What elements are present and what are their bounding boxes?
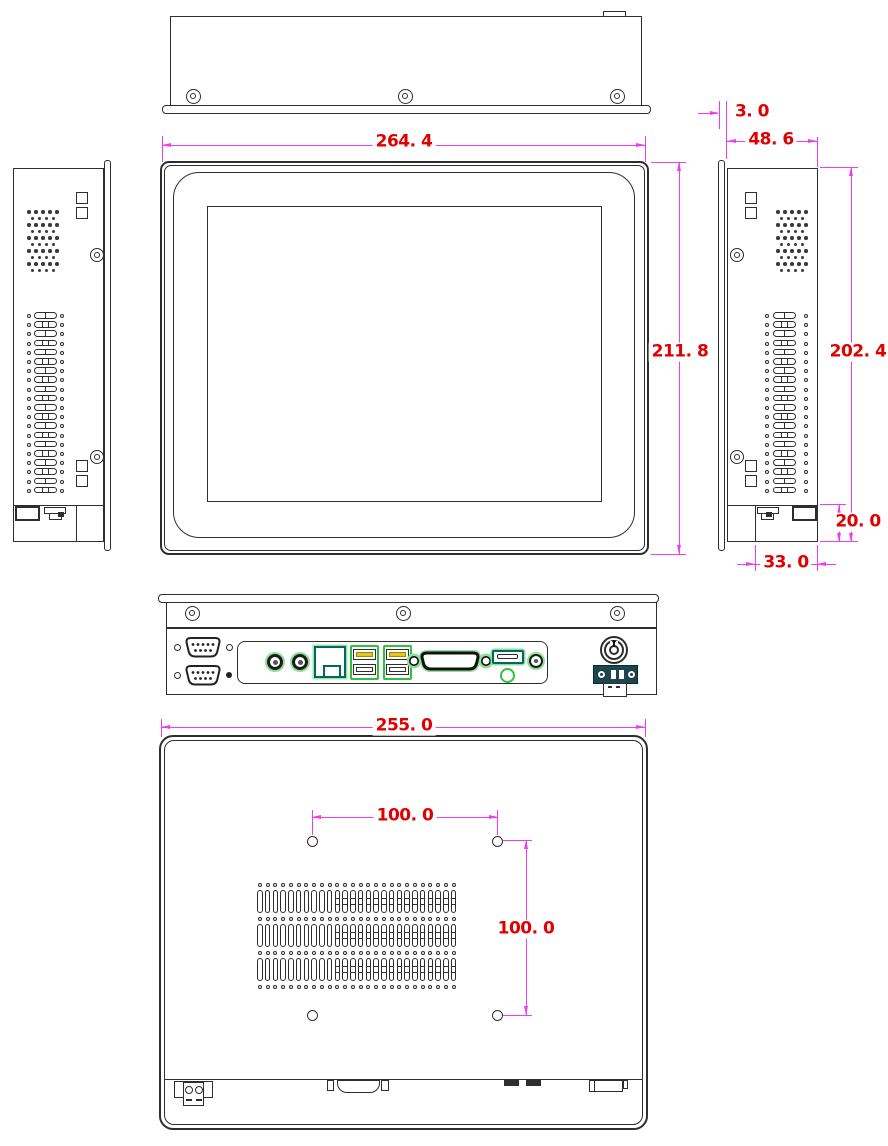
right-view-divider (755, 505, 756, 542)
vent-hole (765, 351, 769, 355)
vent-slot (34, 422, 57, 429)
vent-slot (451, 890, 457, 913)
vent-hole (405, 917, 409, 921)
arrow-icon (849, 167, 853, 176)
vent-hole (436, 883, 440, 887)
vent-hole (374, 985, 378, 989)
vent-hole (297, 951, 301, 955)
vent-hole (804, 480, 808, 484)
vent-hole (258, 951, 262, 955)
vent-slot (381, 924, 387, 947)
arrow-icon (162, 143, 171, 147)
vent-slot (296, 890, 302, 913)
left-view-square-cutout (76, 192, 88, 204)
vent-hole (359, 951, 363, 955)
speaker-hole (45, 256, 49, 260)
vent-hole (452, 883, 456, 887)
extension-line (726, 101, 727, 159)
vent-hole (804, 406, 808, 410)
terminal-plug-mark (608, 686, 612, 688)
speaker-hole (34, 262, 38, 266)
vent-hole (266, 951, 270, 955)
vent-hole (351, 985, 355, 989)
usb-tongue (389, 652, 406, 657)
power-jack (529, 654, 543, 668)
vent-hole (452, 985, 456, 989)
speaker-hole (45, 217, 49, 221)
right-view-bezel-strip (718, 160, 725, 551)
vent-slot (288, 890, 294, 913)
vent-slot (273, 890, 279, 913)
terminal-plug (603, 683, 627, 697)
speaker-hole (34, 249, 38, 253)
arrow-icon (524, 1006, 528, 1015)
vent-hole (374, 883, 378, 887)
vent-slot (319, 924, 325, 947)
vent-hole (436, 917, 440, 921)
vent-slot (273, 924, 279, 947)
vent-slot (397, 958, 403, 981)
vent-hole (60, 388, 64, 392)
vent-hole (27, 434, 31, 438)
speaker-hole (41, 210, 45, 214)
speaker-hole (776, 210, 780, 214)
extension-line (162, 136, 163, 162)
vent-hole (765, 360, 769, 364)
vent-slot (404, 958, 410, 981)
vent-slot (34, 312, 57, 319)
screw-hole (614, 610, 620, 616)
vent-hole (359, 883, 363, 887)
speaker-hole (48, 249, 52, 253)
top-view-tab (603, 11, 626, 17)
vent-hole (343, 883, 347, 887)
vent-hole (804, 360, 808, 364)
vent-hole (413, 883, 417, 887)
extension-line (645, 136, 646, 162)
power-icon-gap (616, 641, 618, 645)
vent-slot (443, 958, 449, 981)
vent-hole (27, 480, 31, 484)
speaker-hole (45, 243, 49, 247)
vent-hole (27, 314, 31, 318)
rear-bottom-seam (165, 1079, 643, 1080)
power-icon-bar (613, 640, 616, 647)
vesa-hole (492, 836, 503, 847)
vent-hole (765, 388, 769, 392)
vent-hole (328, 985, 332, 989)
vent-slot (34, 349, 57, 356)
vent-hole (258, 917, 262, 921)
left-view-square-cutout (76, 460, 88, 472)
vga-port (407, 647, 493, 675)
vent-slot (773, 487, 796, 494)
speaker-hole (55, 210, 59, 214)
vent-hole (421, 883, 425, 887)
vent-hole (320, 951, 324, 955)
vent-slot (773, 468, 796, 475)
vent-slot (311, 890, 317, 913)
vent-hole (289, 883, 293, 887)
vent-slot (412, 890, 418, 913)
vent-hole (343, 951, 347, 955)
arrow-icon (489, 815, 498, 819)
vent-hole (27, 489, 31, 493)
vent-slot (265, 958, 271, 981)
vent-hole (765, 342, 769, 346)
vent-slot (773, 349, 796, 356)
speaker-hole (52, 269, 56, 273)
vent-slot (265, 924, 271, 947)
arrow-icon (524, 840, 528, 849)
vent-slot (389, 890, 395, 913)
vent-slot (34, 459, 57, 466)
speaker-hole (797, 236, 801, 240)
left-view-connector-pin (58, 512, 64, 517)
screw-hole (734, 454, 740, 460)
rear-dsub-tab (381, 1080, 389, 1091)
vent-hole (60, 397, 64, 401)
audio-jack (267, 654, 283, 670)
vent-hole (359, 917, 363, 921)
screw-hole (400, 610, 406, 616)
speaker-hole (27, 249, 31, 253)
vent-slot (34, 404, 57, 411)
vent-slot (304, 890, 310, 913)
vent-hole (351, 883, 355, 887)
vent-slot (34, 367, 57, 374)
arrow-icon (636, 143, 645, 147)
vent-slot (773, 358, 796, 365)
vent-slot (366, 924, 372, 947)
vent-hole (27, 452, 31, 456)
speaker-hole (804, 236, 808, 240)
vent-slot (773, 422, 796, 429)
vent-slot (34, 395, 57, 402)
vent-hole (765, 434, 769, 438)
speaker-hole (790, 236, 794, 240)
vent-hole (281, 985, 285, 989)
vent-hole (765, 480, 769, 484)
speaker-hole (38, 243, 42, 247)
speaker-hole (31, 256, 35, 260)
vent-hole (328, 883, 332, 887)
vent-hole (60, 489, 64, 493)
vent-hole (27, 360, 31, 364)
serial-port (184, 664, 222, 689)
display-area (207, 206, 602, 502)
left-view-square-cutout (76, 475, 88, 487)
vent-slot (34, 330, 57, 337)
vent-slot (420, 890, 426, 913)
speaker-hole (801, 256, 805, 260)
vent-slot (342, 890, 348, 913)
audio-jack (292, 654, 308, 670)
vent-hole (382, 917, 386, 921)
vent-slot (34, 386, 57, 393)
arrow-icon (677, 545, 681, 554)
power-icon-gap (610, 641, 612, 645)
terminal-screw (597, 670, 606, 679)
vent-slot (420, 924, 426, 947)
vent-hole (444, 951, 448, 955)
speaker-hole (787, 269, 791, 273)
vent-hole (27, 342, 31, 346)
vent-hole (60, 452, 64, 456)
vent-hole (289, 917, 293, 921)
vent-slot (428, 958, 434, 981)
vent-hole (804, 452, 808, 456)
speaker-hole (797, 223, 801, 227)
speaker-hole (776, 249, 780, 253)
speaker-hole (48, 223, 52, 227)
arrow-icon (808, 139, 817, 143)
arrow-icon (746, 562, 755, 566)
rear-bracket-line (594, 1080, 595, 1092)
right-view-square-cutout (745, 475, 757, 487)
vent-hole (60, 434, 64, 438)
vent-hole (281, 917, 285, 921)
speaker-hole (38, 217, 42, 221)
vent-hole (351, 917, 355, 921)
right-view-square-cutout (745, 460, 757, 472)
vent-hole (27, 388, 31, 392)
vent-slot (335, 890, 341, 913)
speaker-hole (41, 236, 45, 240)
extension-line (503, 1015, 532, 1016)
vent-hole (804, 443, 808, 447)
vent-hole (390, 951, 394, 955)
vent-hole (258, 985, 262, 989)
screw-hole (190, 93, 196, 99)
displayport-slot (497, 654, 518, 659)
vent-hole (312, 883, 316, 887)
vent-slot (257, 924, 263, 947)
speaker-hole (794, 217, 798, 221)
vent-slot (34, 321, 57, 328)
vent-hole (452, 951, 456, 955)
speaker-hole (787, 243, 791, 247)
vent-slot (773, 321, 796, 328)
vent-hole (60, 314, 64, 318)
vent-slot (34, 441, 57, 448)
dim-vesa-width: 100. 0 (374, 807, 437, 826)
dim-bottom-step-height: 20. 0 (832, 513, 883, 532)
vent-hole (27, 397, 31, 401)
speaker-hole (794, 269, 798, 273)
extension-line (651, 162, 686, 163)
vent-slot (404, 924, 410, 947)
vent-slot (34, 450, 57, 457)
speaker-hole (780, 256, 784, 260)
vent-slot (773, 459, 796, 466)
bottom-view-seam (167, 627, 656, 629)
vent-hole (413, 985, 417, 989)
arrow-icon (710, 111, 719, 115)
vent-hole (320, 917, 324, 921)
speaker-hole (794, 243, 798, 247)
speaker-hole (52, 243, 56, 247)
vent-hole (765, 406, 769, 410)
speaker-hole (787, 256, 791, 260)
screw-hole (402, 93, 408, 99)
vent-slot (319, 890, 325, 913)
screw-hole (94, 454, 100, 460)
vent-slot (443, 924, 449, 947)
ethernet-notch (323, 665, 341, 676)
panel-pc-dimension-drawing: 264. 4 211. 8 3. 0 48. 6 2 (0, 0, 888, 1146)
vent-slot (304, 924, 310, 947)
speaker-hole (52, 256, 56, 260)
speaker-hole (27, 223, 31, 227)
vent-slot (373, 890, 379, 913)
vent-slot (34, 487, 57, 494)
vent-slot (288, 924, 294, 947)
speaker-hole (38, 269, 42, 273)
dim-bottom-step-depth: 33. 0 (760, 554, 811, 573)
vent-slot (435, 890, 441, 913)
rear-terminal-screw (185, 1086, 193, 1094)
vent-slot (34, 432, 57, 439)
speaker-hole (790, 262, 794, 266)
usb-tongue (389, 667, 406, 672)
speaker-hole (783, 223, 787, 227)
vent-hole (359, 985, 363, 989)
vent-hole (60, 342, 64, 346)
vent-hole (374, 917, 378, 921)
arrow-icon (727, 139, 736, 143)
extension-line (820, 504, 846, 505)
speaker-hole (790, 210, 794, 214)
dim-top-width: 264. 4 (373, 133, 436, 152)
vent-hole (297, 917, 301, 921)
vent-slot (773, 404, 796, 411)
speaker-hole (776, 262, 780, 266)
left-view-bezel-strip (104, 160, 111, 551)
speaker-hole (34, 210, 38, 214)
speaker-hole (55, 236, 59, 240)
speaker-hole (31, 230, 35, 234)
vent-hole (60, 443, 64, 447)
usb-tongue (356, 667, 373, 672)
vent-slot (304, 958, 310, 981)
speaker-hole (55, 262, 59, 266)
vent-hole (320, 985, 324, 989)
speaker-hole (780, 269, 784, 273)
vent-slot (296, 958, 302, 981)
vent-slot (443, 890, 449, 913)
vent-hole (320, 883, 324, 887)
vent-hole (804, 388, 808, 392)
vent-hole (289, 951, 293, 955)
vent-slot (389, 958, 395, 981)
vent-slot (773, 432, 796, 439)
speaker-hole (41, 249, 45, 253)
vent-hole (405, 951, 409, 955)
vent-slot (358, 958, 364, 981)
right-view-connector-pin (766, 512, 772, 517)
vent-slot (389, 924, 395, 947)
rear-vent-dash (526, 1080, 541, 1086)
vent-slot (358, 924, 364, 947)
vent-hole (390, 917, 394, 921)
vent-slot (773, 395, 796, 402)
vent-hole (421, 985, 425, 989)
vent-slot (373, 924, 379, 947)
speaker-hole (776, 223, 780, 227)
vent-hole (765, 489, 769, 493)
speaker-hole (52, 230, 56, 234)
extension-line (719, 101, 720, 129)
vent-hole (413, 917, 417, 921)
vent-hole (444, 883, 448, 887)
vent-slot (373, 958, 379, 981)
vent-slot (350, 958, 356, 981)
vent-hole (765, 452, 769, 456)
vent-hole (343, 917, 347, 921)
vent-slot (428, 890, 434, 913)
speaker-hole (783, 210, 787, 214)
vent-hole (436, 951, 440, 955)
serial-screw-hole (174, 672, 181, 679)
speaker-hole (804, 210, 808, 214)
vent-slot (265, 890, 271, 913)
left-view-connector-box (15, 506, 40, 521)
vent-slot (34, 413, 57, 420)
arrow-icon (636, 725, 645, 729)
vent-hole (60, 406, 64, 410)
vent-slot (296, 924, 302, 947)
speaker-hole (45, 269, 49, 273)
vent-slot (773, 330, 796, 337)
vent-hole (60, 480, 64, 484)
vent-slot (773, 367, 796, 374)
vent-slot (358, 890, 364, 913)
vent-slot (773, 386, 796, 393)
speaker-hole (801, 243, 805, 247)
speaker-hole (31, 217, 35, 221)
vent-hole (27, 351, 31, 355)
vesa-hole (492, 1010, 503, 1021)
speaker-hole (38, 230, 42, 234)
vent-hole (421, 917, 425, 921)
right-view-connector-box (792, 506, 817, 521)
vent-hole (266, 883, 270, 887)
vent-slot (327, 924, 333, 947)
vent-slot (335, 924, 341, 947)
screw-hole (614, 93, 620, 99)
right-view-square-cutout (745, 192, 757, 204)
speaker-hole (794, 230, 798, 234)
jack-center (298, 660, 303, 665)
vent-hole (436, 985, 440, 989)
vent-slot (773, 376, 796, 383)
vent-hole (804, 397, 808, 401)
arrow-icon (849, 533, 853, 542)
reset-hole (500, 668, 515, 683)
rear-bracket-tab (623, 1080, 628, 1089)
extension-line (645, 719, 646, 737)
terminal-screw (627, 670, 636, 679)
speaker-hole (38, 256, 42, 260)
dim-front-height: 211. 8 (649, 343, 712, 362)
vent-slot (435, 958, 441, 981)
vent-slot (34, 376, 57, 383)
vent-hole (390, 985, 394, 989)
vent-hole (804, 351, 808, 355)
vent-hole (312, 951, 316, 955)
vent-slot (350, 890, 356, 913)
